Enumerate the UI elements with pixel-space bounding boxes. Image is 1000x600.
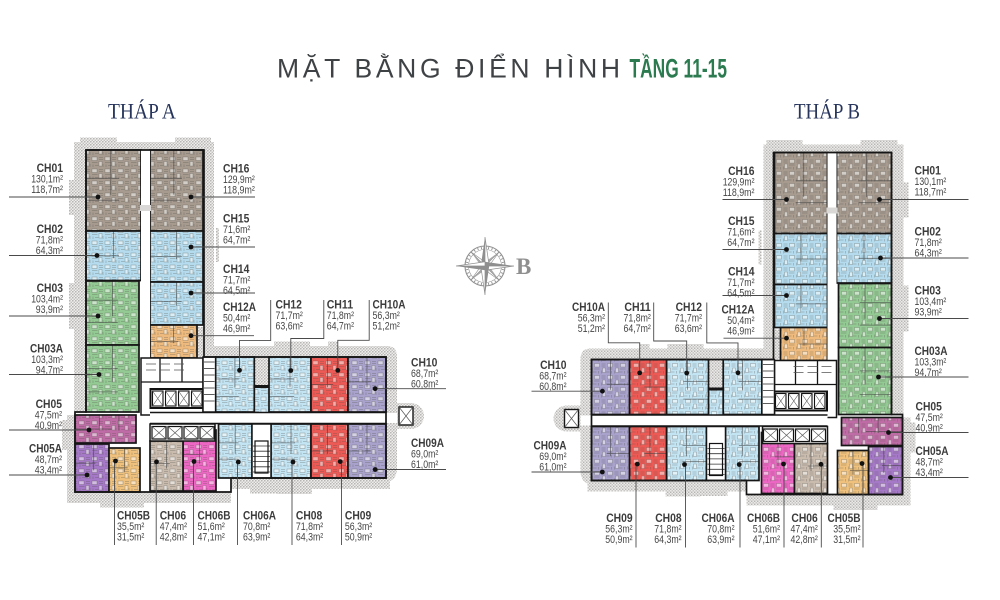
svg-text:31,5m²: 31,5m² [117,532,145,544]
svg-text:31,5m²: 31,5m² [833,534,861,546]
svg-text:51,2m²: 51,2m² [373,321,401,333]
svg-text:64,7m²: 64,7m² [624,323,652,335]
svg-text:46,9m²: 46,9m² [223,323,251,335]
svg-text:63,6m²: 63,6m² [276,321,304,333]
svg-text:64,5m²: 64,5m² [727,288,755,300]
svg-text:THÁP A: THÁP A [108,99,176,124]
svg-text:118,9m²: 118,9m² [223,185,255,197]
svg-text:46,9m²: 46,9m² [727,326,755,338]
svg-text:93,9m²: 93,9m² [915,307,943,319]
svg-text:50,9m²: 50,9m² [345,532,373,544]
svg-text:42,8m²: 42,8m² [791,534,819,546]
svg-text:64,3m²: 64,3m² [654,534,682,546]
svg-text:64,5m²: 64,5m² [223,285,251,297]
svg-text:MẶT BẰNG ĐIỂN HÌNH: MẶT BẰNG ĐIỂN HÌNH [277,54,620,84]
svg-text:50,9m²: 50,9m² [605,534,633,546]
svg-text:64,7m²: 64,7m² [727,237,755,249]
svg-text:47,1m²: 47,1m² [198,532,226,544]
svg-text:64,7m²: 64,7m² [327,321,355,333]
svg-text:THÁP B: THÁP B [794,99,860,124]
svg-text:B: B [516,254,531,279]
svg-text:118,7m²: 118,7m² [915,187,947,199]
svg-text:118,7m²: 118,7m² [31,184,63,196]
svg-text:51,2m²: 51,2m² [578,323,606,335]
svg-text:64,7m²: 64,7m² [223,235,251,247]
svg-text:63,9m²: 63,9m² [243,532,271,544]
svg-text:42,8m²: 42,8m² [160,532,188,544]
svg-text:64,3m²: 64,3m² [296,532,324,544]
svg-text:118,9m²: 118,9m² [723,187,755,199]
svg-text:TẦNG 11-15: TẦNG 11-15 [630,54,728,84]
svg-text:63,9m²: 63,9m² [707,534,735,546]
svg-text:93,9m²: 93,9m² [36,304,64,316]
svg-text:47,1m²: 47,1m² [753,534,781,546]
svg-text:63,6m²: 63,6m² [675,323,703,335]
